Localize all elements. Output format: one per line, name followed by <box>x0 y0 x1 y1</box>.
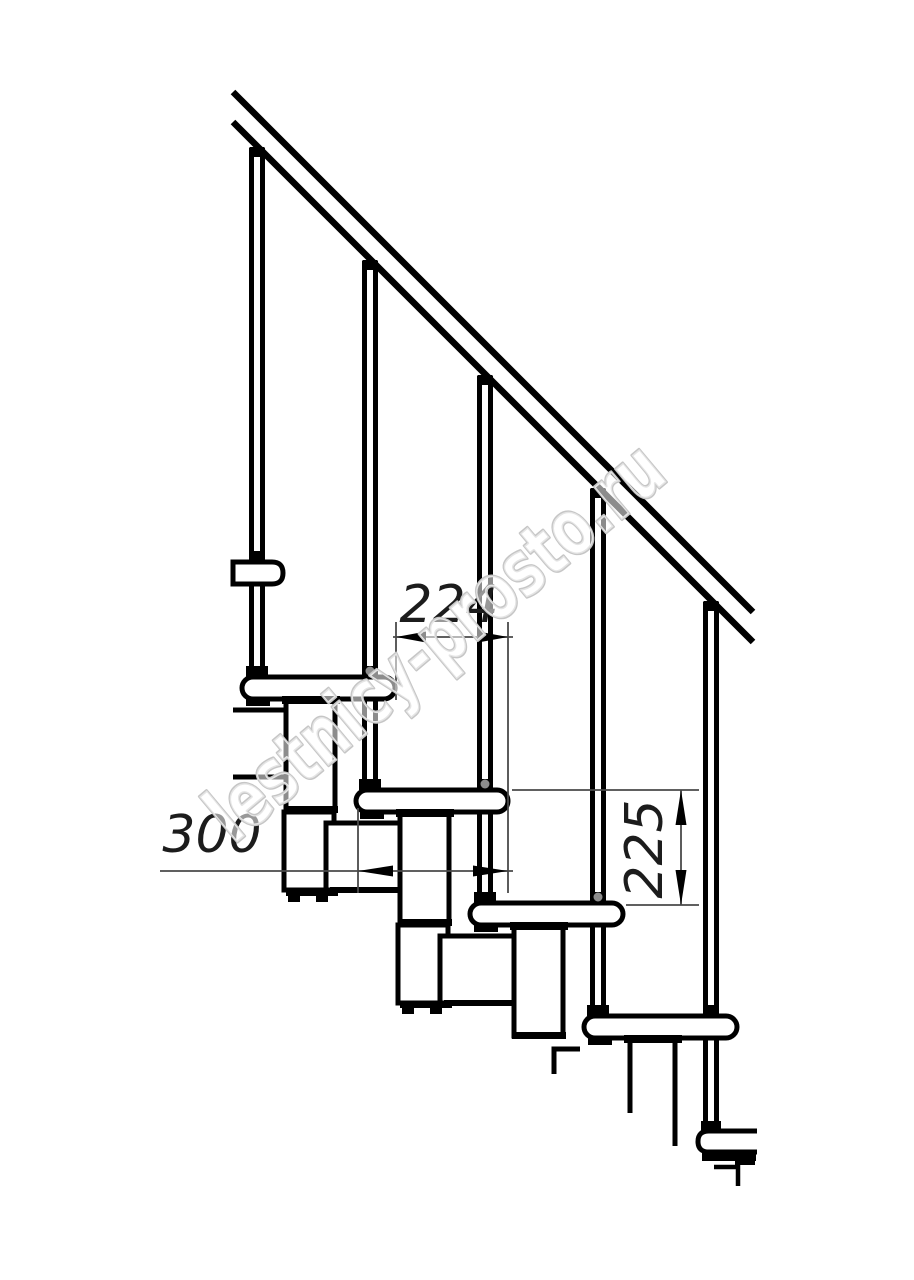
baluster-1-collar <box>250 551 264 561</box>
module-5-back-box-corner <box>554 1049 580 1074</box>
module-3-foot-b <box>430 1007 442 1014</box>
module-2-foot-b <box>316 895 328 902</box>
dim-225-label: 225 <box>615 799 675 898</box>
module-3-seam-band <box>398 919 452 926</box>
module-3-back-box <box>326 823 402 890</box>
baluster-5-foot <box>701 1121 721 1131</box>
module-3-foot-a <box>402 1007 414 1014</box>
dim-225-arrow-down <box>676 870 687 905</box>
baluster-rod-5 <box>706 604 717 1131</box>
module-2-mount-block <box>246 697 270 706</box>
module-4-seam-band <box>512 1032 566 1039</box>
tread-5 <box>584 1016 737 1038</box>
module-5-mount-block <box>588 1036 612 1045</box>
tread-1-partial <box>233 562 283 584</box>
module-5-under-band <box>624 1035 682 1043</box>
baluster-1-foot <box>246 666 268 677</box>
module-4-back-box <box>440 936 516 1003</box>
module-6-right-block <box>735 1154 755 1165</box>
module-3-column <box>400 813 449 923</box>
module-4-square-band <box>444 1000 514 1006</box>
baluster-4-foot <box>587 1005 609 1016</box>
module-4-mount-block <box>474 923 498 932</box>
module-2-foot-a <box>288 895 300 902</box>
staircase-drawing-page: 224 300 225 lestnicy-prosto.ru <box>0 0 914 1280</box>
dim-225-arrow-up <box>676 790 687 825</box>
module-5 <box>554 1041 675 1146</box>
baluster-3-foot <box>474 892 496 903</box>
module-4 <box>440 926 563 1036</box>
fittings <box>246 147 756 1165</box>
module-3 <box>326 813 449 1003</box>
tread-3 <box>356 790 508 812</box>
baluster-rod-1 <box>252 150 263 677</box>
baluster-2-foot <box>359 779 381 790</box>
module-3-square-band <box>330 887 400 893</box>
baluster-4-collar-ball <box>594 893 603 902</box>
module-3-mount-block <box>360 810 384 819</box>
staircase-drawing: 224 300 225 lestnicy-prosto.ru <box>0 0 914 1280</box>
module-4-under-band <box>510 922 568 930</box>
module-4-column <box>514 926 563 1036</box>
baluster-3-collar-ball <box>481 780 490 789</box>
tread-4 <box>470 903 623 925</box>
module-6-corner-line <box>714 1167 738 1186</box>
tread-6-partial <box>698 1131 757 1152</box>
baluster-5-collar <box>704 1005 718 1015</box>
module-3-under-band <box>396 809 454 817</box>
baluster-rod-4 <box>593 491 604 1016</box>
